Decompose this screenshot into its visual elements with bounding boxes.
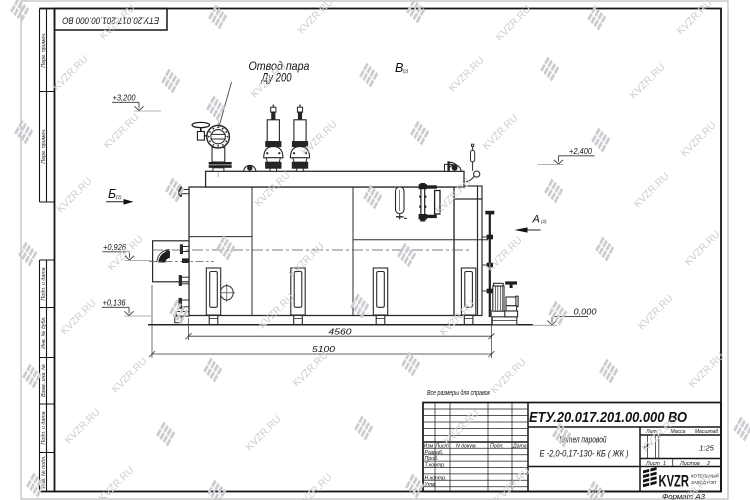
svg-text:+2,400: +2,400	[569, 147, 593, 156]
svg-text:(2): (2)	[116, 195, 122, 200]
svg-text:(2): (2)	[541, 219, 547, 224]
svg-text:Взам. инв. №: Взам. инв. №	[41, 364, 47, 397]
svg-text:Листов: Листов	[679, 461, 700, 467]
svg-text:+0,136: +0,136	[103, 298, 127, 307]
svg-text:0,000: 0,000	[574, 308, 598, 317]
svg-text:Изм: Изм	[424, 444, 434, 450]
svg-text:Подп.: Подп.	[490, 444, 504, 450]
svg-text:(2): (2)	[403, 68, 409, 73]
svg-text:Дата: Дата	[512, 444, 527, 450]
svg-text:Утв.: Утв.	[425, 482, 437, 488]
svg-text:N докум.: N докум.	[456, 444, 477, 450]
svg-text:4560: 4560	[329, 327, 353, 336]
svg-text:Масса: Масса	[671, 429, 686, 435]
svg-text:Масштаб: Масштаб	[695, 429, 719, 435]
svg-text:1: 1	[663, 461, 666, 467]
svg-text:Е -2,0-0,17-130- КБ ( ЖК ): Е -2,0-0,17-130- КБ ( ЖК )	[540, 449, 629, 459]
svg-text:Подп. и дата: Подп. и дата	[41, 267, 47, 300]
svg-text:Лист: Лист	[645, 461, 660, 467]
svg-text:Котел паровой: Котел паровой	[560, 435, 607, 446]
svg-text:Перв. примен.: Перв. примен.	[41, 128, 47, 163]
svg-text:Подп. и дата: Подп. и дата	[41, 411, 47, 444]
svg-text:Все размеры для справок: Все размеры для справок	[427, 388, 490, 397]
svg-text:Б: Б	[108, 187, 116, 201]
svg-text:Т.контр.: Т.контр.	[425, 463, 446, 469]
svg-text:Инв. № дубл.: Инв. № дубл.	[41, 316, 47, 349]
svg-text:Н.контр.: Н.контр.	[425, 475, 447, 481]
svg-text:KVZR: KVZR	[659, 473, 690, 491]
svg-text:Разраб.: Разраб.	[425, 450, 444, 456]
svg-text:2: 2	[706, 461, 710, 467]
svg-text:Проб.: Проб.	[425, 456, 439, 462]
svg-text:А: А	[532, 214, 540, 226]
svg-text:Перв. примен.: Перв. примен.	[41, 32, 47, 67]
svg-text:+3,200: +3,200	[113, 93, 137, 102]
svg-text:1:25: 1:25	[699, 444, 714, 453]
